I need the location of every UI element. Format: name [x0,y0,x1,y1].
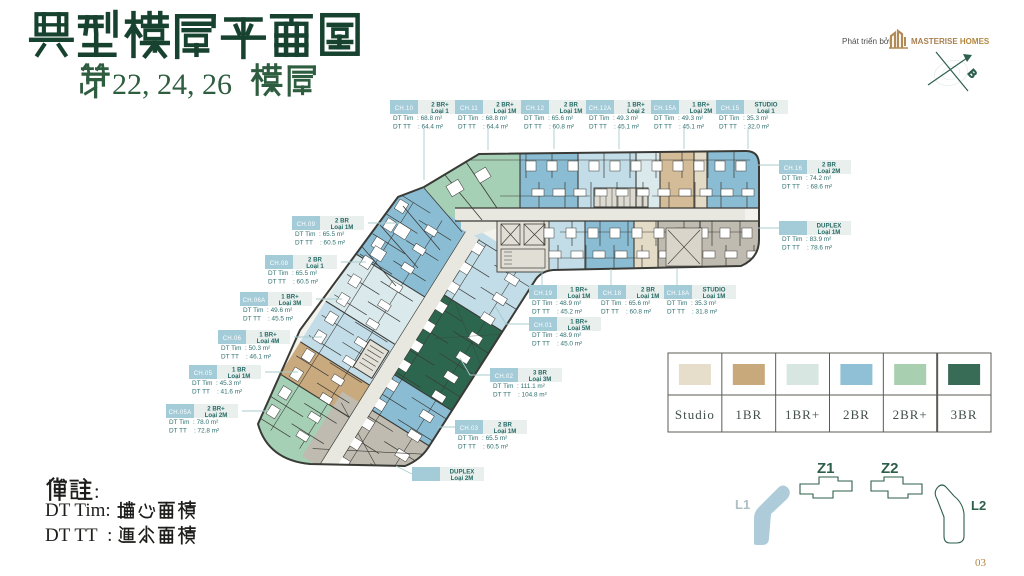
svg-text:CH.15: CH.15 [721,106,740,112]
svg-text:Z2: Z2 [881,460,899,477]
svg-text:DT Tim : 35.3 m²: DT Tim : 35.3 m² [667,300,716,307]
svg-text:CH.18A: CH.18A [667,291,690,297]
svg-text:Loại 1: Loại 1 [431,108,449,115]
svg-text:CH.02: CH.02 [495,374,514,380]
svg-text:DT TT : 60.5 m²: DT TT : 60.5 m² [268,279,318,286]
svg-text:CH.01: CH.01 [534,323,553,329]
svg-text:CH.08: CH.08 [270,261,289,267]
svg-text:Loại 1M: Loại 1M [560,108,583,115]
svg-text:DT TT : 45.1 m²: DT TT : 45.1 m² [654,124,704,131]
svg-text:Loại 1M: Loại 1M [568,293,591,300]
svg-text:DT TT : 64.4 m²: DT TT : 64.4 m² [393,124,443,131]
svg-text:Loại 1M: Loại 1M [818,229,841,236]
svg-text:DT TT : 78.6 m²: DT TT : 78.6 m² [782,245,832,252]
svg-text:Loại 1: Loại 1 [306,263,324,270]
svg-text:3BR: 3BR [951,407,978,422]
svg-text:DT Tim : 49.6 m²: DT Tim : 49.6 m² [243,307,292,314]
svg-text:DT TT : 31.8 m²: DT TT : 31.8 m² [667,309,717,316]
svg-text:DT Tim : 65.6 m²: DT Tim : 65.6 m² [524,115,573,122]
svg-text:CH.03: CH.03 [460,426,479,432]
svg-text:DT TT :: DT TT : [45,525,112,546]
svg-text:B: B [965,67,979,80]
svg-text:Loại 1M: Loại 1M [331,224,354,231]
svg-text:DT Tim : 83.9 m²: DT Tim : 83.9 m² [782,236,831,243]
svg-text:DT Tim : 78.0 m²: DT Tim : 78.0 m² [169,419,218,426]
svg-text:Loại 2M: Loại 2M [690,108,713,115]
svg-text:DT Tim:: DT Tim: [45,500,111,521]
svg-text:DT TT : 32.0 m²: DT TT : 32.0 m² [719,124,769,131]
svg-text:DT Tim : 49.3 m²: DT Tim : 49.3 m² [654,115,703,122]
svg-text:DT Tim : 49.3 m²: DT Tim : 49.3 m² [589,115,638,122]
svg-text:03: 03 [975,557,987,569]
svg-text:CH.12: CH.12 [526,106,545,112]
svg-text:Loại 1: Loại 1 [757,108,775,115]
svg-text:DT TT : 60.5 m²: DT TT : 60.5 m² [295,240,345,247]
svg-text:Loại 3M: Loại 3M [529,376,552,383]
svg-text:L2: L2 [971,498,986,513]
svg-text:DT Tim : 68.8 m²: DT Tim : 68.8 m² [393,115,442,122]
svg-text:Loại 1M: Loại 1M [494,428,517,435]
svg-text:DT TT : 60.8 m²: DT TT : 60.8 m² [601,309,651,316]
svg-text:2BR: 2BR [843,407,870,422]
svg-text:DT TT : 72.8 m²: DT TT : 72.8 m² [169,428,219,435]
svg-text:CH.06A: CH.06A [243,298,266,304]
svg-text:Loại 1M: Loại 1M [703,293,726,300]
svg-text:Loại 2: Loại 2 [627,108,645,115]
svg-text:2BR+: 2BR+ [893,407,928,422]
svg-text:DT Tim : 45.3 m²: DT Tim : 45.3 m² [192,380,241,387]
svg-text:Loại 1M: Loại 1M [637,293,660,300]
svg-text:DT Tim : 65.5 m²: DT Tim : 65.5 m² [295,231,344,238]
svg-text:DT Tim : 111.1 m²: DT Tim : 111.1 m² [493,383,545,390]
svg-text:CH.09: CH.09 [297,222,316,228]
svg-text:1BR+: 1BR+ [785,407,820,422]
svg-text:CH.11: CH.11 [460,106,478,112]
svg-text:DT Tim : 65.5 m²: DT Tim : 65.5 m² [458,435,507,442]
svg-text:Z1: Z1 [817,460,835,477]
svg-text:Loại 3M: Loại 3M [279,300,302,307]
svg-text:Studio: Studio [675,407,715,422]
svg-text:DT TT : 68.6 m²: DT TT : 68.6 m² [782,184,832,191]
svg-text:Loại 2M: Loại 2M [451,475,474,482]
svg-text:Loại 1M: Loại 1M [494,108,517,115]
svg-text:CH.05A: CH.05A [169,410,192,416]
svg-text:Loại 4M: Loại 4M [257,338,280,345]
svg-text:CH.05: CH.05 [194,371,213,377]
svg-text:Phát triển bởi: Phát triển bởi [842,36,891,46]
svg-text:DT TT : 45.5 m²: DT TT : 45.5 m² [243,316,293,323]
svg-text:DT Tim : 35.3 m²: DT Tim : 35.3 m² [719,115,768,122]
svg-text:L1: L1 [735,497,750,512]
svg-text:CH.10: CH.10 [395,106,414,112]
svg-text:1BR: 1BR [735,407,762,422]
svg-text:DT TT : 60.5 m²: DT TT : 60.5 m² [458,444,508,451]
svg-text:Loại 2M: Loại 2M [818,168,841,175]
svg-text:DT Tim : 68.8 m²: DT Tim : 68.8 m² [458,115,507,122]
svg-text:DT TT : 46.1 m²: DT TT : 46.1 m² [221,354,271,361]
svg-text:CH.19: CH.19 [534,291,553,297]
svg-text:DT TT : 60.8 m²: DT TT : 60.8 m² [524,124,574,131]
svg-text:DT TT : 45.1 m²: DT TT : 45.1 m² [589,124,639,131]
svg-text:Loại 1M: Loại 1M [228,373,251,380]
svg-text:DT TT : 41.6 m²: DT TT : 41.6 m² [192,389,242,396]
svg-text:DT Tim : 50.3 m²: DT Tim : 50.3 m² [221,345,270,352]
svg-text:22, 24, 26: 22, 24, 26 [112,68,232,101]
svg-text:Loại 5M: Loại 5M [568,325,591,332]
svg-text:DT TT : 104.8 m²: DT TT : 104.8 m² [493,392,547,399]
svg-text:DT Tim : 48.9 m²: DT Tim : 48.9 m² [532,332,581,339]
svg-text:DT TT : 64.4 m²: DT TT : 64.4 m² [458,124,508,131]
svg-text:CH.12A: CH.12A [589,106,612,112]
svg-text:MASTERISE HOMES: MASTERISE HOMES [911,37,990,46]
svg-text:CH.06: CH.06 [223,336,242,342]
svg-text:CH.18: CH.18 [603,291,622,297]
svg-text:CH.15A: CH.15A [654,106,677,112]
svg-text:DT Tim : 65.6 m²: DT Tim : 65.6 m² [601,300,650,307]
svg-text:DT Tim : 65.5 m²: DT Tim : 65.5 m² [268,270,317,277]
svg-text:DT TT : 45.0 m²: DT TT : 45.0 m² [532,341,582,348]
svg-text:DT Tim : 74.2 m²: DT Tim : 74.2 m² [782,175,831,182]
svg-text:DT TT : 45.2 m²: DT TT : 45.2 m² [532,309,582,316]
svg-text:Loại 2M: Loại 2M [205,412,228,419]
svg-text:CH.16: CH.16 [784,166,803,172]
svg-text:DT Tim : 48.9 m²: DT Tim : 48.9 m² [532,300,581,307]
